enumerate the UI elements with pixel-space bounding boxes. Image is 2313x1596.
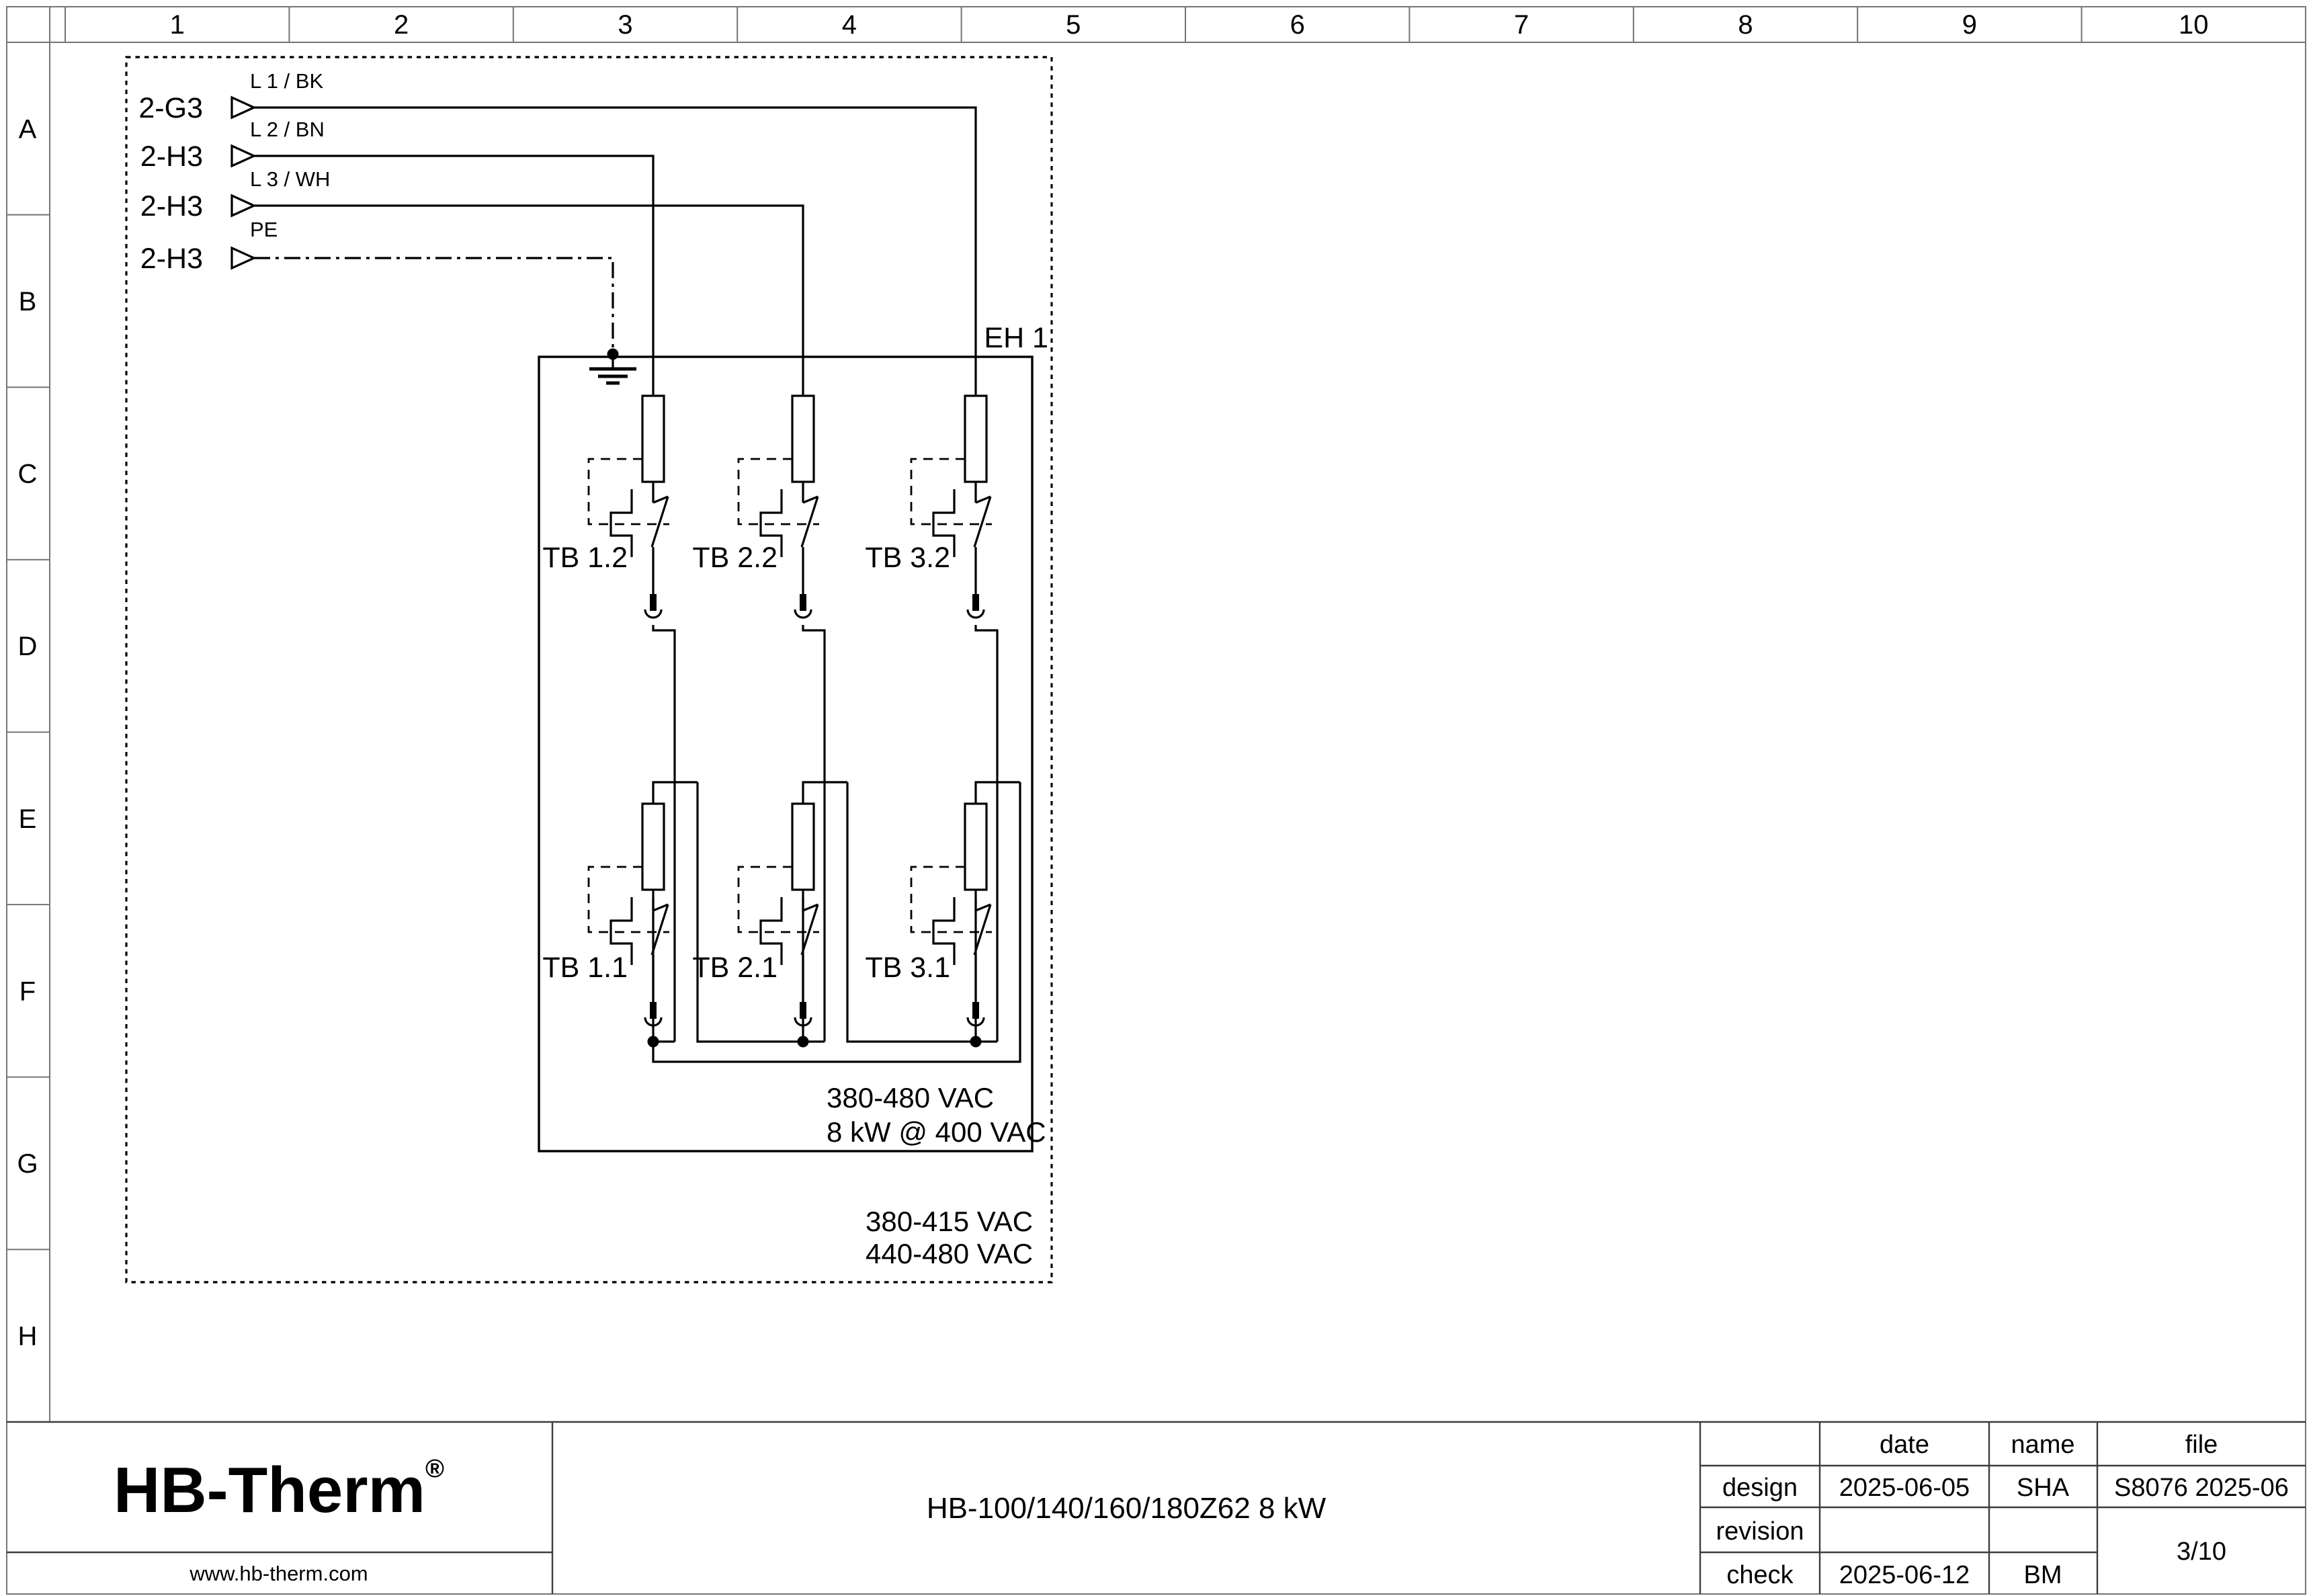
contact-blade-icon (802, 497, 818, 547)
table-header-file: file (2185, 1431, 2218, 1459)
thermal-sensor-box-icon (739, 867, 819, 932)
heater-element-icon (792, 396, 814, 482)
plug-pin-icon (972, 594, 979, 611)
column-ruler: 12345678910 (170, 10, 2209, 40)
schematic-sheet: 12345678910 ABCDEFGH 2-G3 2-H3 2-H3 2-H3… (0, 0, 2313, 1596)
ratings: 380-480 VAC 8 kW @ 400 VAC 380-415 VAC 4… (827, 1082, 1046, 1269)
column-label: 7 (1514, 10, 1529, 40)
company-website: www.hb-therm.com (189, 1562, 368, 1585)
source-tag: 2-H3 (140, 140, 203, 173)
row-label: F (19, 976, 36, 1006)
source-tag: 2-G3 (138, 92, 203, 124)
drawing-frame (7, 7, 2306, 1594)
column-label: 5 (1066, 10, 1081, 40)
column-label: 4 (842, 10, 857, 40)
rating-option-2: 440-480 VAC (866, 1238, 1033, 1269)
document-title: HB-100/140/160/180Z62 8 kW (927, 1492, 1327, 1525)
row-label-check: check (1726, 1561, 1794, 1589)
row-label: A (19, 114, 37, 144)
column-label: 8 (1738, 10, 1753, 40)
design-name: SHA (2017, 1474, 2070, 1502)
heater-element-icon (792, 804, 814, 890)
page-number: 3/10 (2177, 1538, 2226, 1566)
row-label-revision: revision (1716, 1517, 1804, 1546)
tb-heater-units: TB 1.2TB 1.1TB 2.2TB 2.1TB 3.2TB 3.1 (542, 396, 1020, 1062)
feed-arrow-icon (232, 97, 254, 118)
column-label: 6 (1290, 10, 1305, 40)
heater-element-icon (965, 804, 986, 890)
wire-L3 (254, 206, 803, 396)
tb-unit: TB 3.1 (865, 804, 992, 1025)
feed-arrow-icon (232, 146, 254, 166)
row-label: E (19, 804, 37, 834)
column-label: 2 (394, 10, 409, 40)
ruler-gridlines (7, 7, 2306, 1249)
source-tag: 2-H3 (140, 190, 203, 222)
heater-element-icon (642, 396, 664, 482)
tb-unit: TB 1.1 (542, 804, 669, 1025)
feed-arrow-icon (232, 196, 254, 216)
column-label: 9 (1962, 10, 1977, 40)
thermal-sensor-box-icon (911, 459, 992, 524)
company-logo: HB-Therm® (114, 1454, 444, 1526)
wire-label: L 3 / WH (250, 167, 330, 191)
row-label: B (19, 287, 37, 317)
column-label: 1 (170, 10, 185, 40)
tb-label: TB 2.2 (692, 542, 777, 574)
column-label: 10 (2179, 10, 2209, 40)
tb-unit: TB 2.2 (692, 396, 819, 618)
rating-power: 8 kW @ 400 VAC (827, 1116, 1046, 1148)
source-tag: 2-H3 (140, 243, 203, 275)
design-file: S8076 2025-06 (2114, 1474, 2289, 1502)
thermal-sensor-box-icon (911, 867, 992, 932)
row-label: H (18, 1322, 38, 1351)
column-label: 3 (618, 10, 632, 40)
contact-blade-icon (974, 497, 991, 547)
thermal-sensor-box-icon (589, 459, 669, 524)
table-header-date: date (1880, 1431, 1929, 1459)
contact-blade-icon (652, 497, 668, 547)
heater-element-icon (965, 396, 986, 482)
tb-label: TB 3.2 (865, 542, 950, 574)
rating-voltage: 380-480 VAC (827, 1082, 994, 1114)
wire-label: PE (250, 218, 278, 241)
tb-label: TB 1.1 (542, 952, 628, 984)
check-date: 2025-06-12 (1839, 1561, 1970, 1589)
design-date: 2025-06-05 (1839, 1474, 1970, 1502)
feed-arrow-icon (232, 248, 254, 268)
tb-label: TB 1.2 (542, 542, 628, 574)
table-header-name: name (2011, 1431, 2074, 1459)
plug-pin-icon (800, 594, 806, 611)
ground-symbol (589, 349, 636, 384)
wire-label: L 1 / BK (250, 69, 323, 93)
heater-box-label: EH 1 (984, 322, 1048, 354)
row-label: G (17, 1149, 38, 1179)
registered-mark: ® (425, 1455, 444, 1483)
thermal-sensor-box-icon (589, 867, 669, 932)
wire-label: L 2 / BN (250, 118, 325, 141)
heater-box-eh1 (539, 357, 1032, 1151)
tb-unit: TB 3.2 (865, 396, 992, 618)
thermal-sensor-box-icon (739, 459, 819, 524)
rating-option-1: 380-415 VAC (866, 1206, 1033, 1237)
wire-PE (254, 258, 613, 349)
heater-element-icon (642, 804, 664, 890)
plug-pin-icon (650, 594, 657, 611)
row-label: C (18, 460, 38, 489)
check-name: BM (2024, 1561, 2062, 1589)
row-label: D (18, 632, 38, 661)
incoming-feeds: 2-G3 2-H3 2-H3 2-H3 L 1 / BK L 2 / BN L … (138, 69, 976, 396)
tb-label: TB 2.1 (692, 952, 777, 984)
title-block: HB-Therm® www.hb-therm.com HB-100/140/16… (7, 1422, 2306, 1594)
tb-unit: TB 1.2 (542, 396, 669, 618)
tb-label: TB 3.1 (865, 952, 950, 984)
delta-link-wire (698, 782, 803, 1042)
wire-L2 (254, 156, 653, 396)
tb-unit: TB 2.1 (692, 804, 819, 1025)
row-label-design: design (1722, 1474, 1798, 1502)
